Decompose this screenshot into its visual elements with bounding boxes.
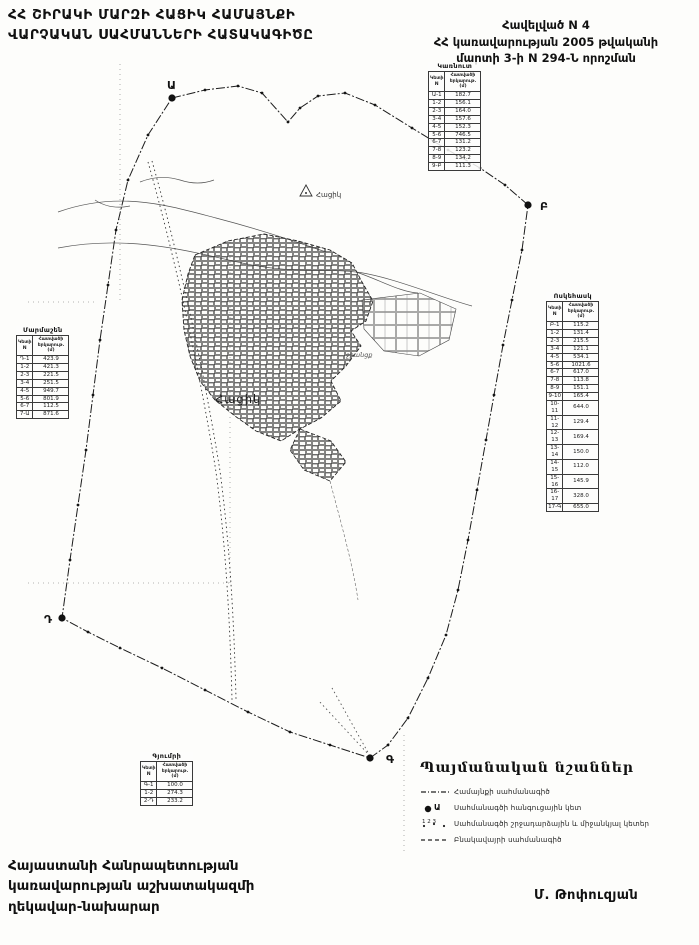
grid-lines <box>28 64 404 855</box>
table-cell: 644.0 <box>563 400 599 415</box>
table-cell: 534.1 <box>563 353 599 361</box>
table-cell: 2-3 <box>429 107 445 115</box>
table-row: 11-12129.4 <box>547 415 599 430</box>
table-cell: 421.3 <box>33 364 69 372</box>
legend-label: Բնակավայրի սահմանագիծ <box>454 836 562 844</box>
table-cell: 134.2 <box>445 155 481 163</box>
legend: Պայմանական նշաններ Համայնքի սահմանագիծ Ա… <box>420 760 688 848</box>
table-cell: 150.0 <box>563 445 599 460</box>
svg-text:Ա: Ա <box>434 803 441 812</box>
table-cell: 157.6 <box>445 115 481 123</box>
table-cell: Բ-1 <box>547 322 563 330</box>
table-cell: 801.9 <box>33 395 69 403</box>
boundary-table-south: Գյումրի Կետի N Հատվածի երկարութ. (մ) Գ-1… <box>140 752 193 806</box>
table-cell: 13-14 <box>547 445 563 460</box>
table-row: 3-4251.5 <box>17 379 69 387</box>
table-row: 14-15112.0 <box>547 459 599 474</box>
table-row: 5-61021.6 <box>547 361 599 369</box>
table-cell: 8-9 <box>547 385 563 393</box>
boundary-table-north: Կառնուտ Կետի N Հատվածի երկարութ. (մ) Ա-1… <box>428 62 481 171</box>
table-cell: 3-4 <box>17 379 33 387</box>
table-cell: 123.2 <box>445 147 481 155</box>
table-row: 4-5949.7 <box>17 387 69 395</box>
legend-label: Համայնքի սահմանագիծ <box>454 788 550 796</box>
table-row: 12-13169.4 <box>547 430 599 445</box>
table-row: Գ-1100.0 <box>141 782 193 790</box>
table-cell: 156.1 <box>445 100 481 108</box>
table-row: Դ-1423.9 <box>17 356 69 364</box>
parcel-area <box>362 293 456 356</box>
table-cell: 5-6 <box>429 131 445 139</box>
table-row: 4-5534.1 <box>547 353 599 361</box>
neighbor-name-south: Գյումրի <box>140 752 193 760</box>
table-cell: 617.0 <box>563 369 599 377</box>
table-row: 1-2274.3 <box>141 790 193 798</box>
table-cell: 111.3 <box>445 163 481 171</box>
table-cell: 112.5 <box>33 403 69 411</box>
settlement-tail <box>290 429 346 481</box>
table-row: 1-2156.1 <box>429 100 481 108</box>
neighbor-name-north: Կառնուտ <box>428 62 481 70</box>
table-cell: 423.9 <box>33 356 69 364</box>
table-cell: 121.1 <box>563 345 599 353</box>
scanned-map-sheet: Ա Բ Գ Դ Հացիկ Հացիկ ջրանցք ՀՀ ՇԻՐԱԿԻ ՄԱՐ… <box>0 0 699 945</box>
table-cell: 5-6 <box>547 361 563 369</box>
table-cell: 9-10 <box>547 393 563 401</box>
node-label-a: Ա <box>167 79 176 92</box>
table-cell: 151.1 <box>563 385 599 393</box>
geo-point-label: Հացիկ <box>316 191 341 199</box>
node-label-b: Բ <box>540 200 548 213</box>
table-cell: 15-16 <box>547 474 563 489</box>
svg-text:1 2 3: 1 2 3 <box>422 819 436 825</box>
table-row: 16-17328.0 <box>547 489 599 504</box>
col-point: Կետի N <box>547 302 563 322</box>
table-row: 2-3164.0 <box>429 107 481 115</box>
table-row: 3-4121.1 <box>547 345 599 353</box>
table-cell: 100.0 <box>157 782 193 790</box>
table-cell: 11-12 <box>547 415 563 430</box>
table-cell: Դ-1 <box>17 356 33 364</box>
table-cell: 6-7 <box>17 403 33 411</box>
boundary-table-west: Մարմաշեն Կետի N Հատվածի երկարութ. (մ) Դ-… <box>16 326 69 419</box>
table-cell: 6-7 <box>547 369 563 377</box>
table-row: 3-4157.6 <box>429 115 481 123</box>
neighbor-name-east: Ոսկեհասկ <box>546 292 599 300</box>
col-length: Հատվածի երկարութ. (մ) <box>445 72 481 92</box>
table-cell: 3-4 <box>429 115 445 123</box>
table-cell: 746.5 <box>445 131 481 139</box>
table-row: Բ-1115.2 <box>547 322 599 330</box>
table-cell: 1-2 <box>17 364 33 372</box>
neighbor-name-west: Մարմաշեն <box>16 326 69 334</box>
turning-points-icon: 1 2 3 <box>420 818 454 830</box>
table-cell: 215.5 <box>563 337 599 345</box>
table-cell: 14-15 <box>547 459 563 474</box>
table-cell: 131.4 <box>563 330 599 338</box>
table-cell: 655.0 <box>563 504 599 512</box>
table-cell: 112.0 <box>563 459 599 474</box>
table-cell: 871.6 <box>33 411 69 419</box>
table-cell: 949.7 <box>33 387 69 395</box>
table-cell: 1-2 <box>141 790 157 798</box>
table-cell: 152.3 <box>445 123 481 131</box>
legend-item-community-boundary: Համայնքի սահմանագիծ <box>420 784 688 800</box>
legend-label: Սահմանագծի շրջադարձային և միջանկյալ կետե… <box>454 820 649 828</box>
table-cell: 131.2 <box>445 139 481 147</box>
col-length: Հատվածի երկարութ. (մ) <box>157 762 193 782</box>
table-cell: 182.7 <box>445 92 481 100</box>
table-row: 4-5152.3 <box>429 123 481 131</box>
table-row: 1-2421.3 <box>17 364 69 372</box>
table-row: 5-6746.5 <box>429 131 481 139</box>
col-point: Կետի N <box>141 762 157 782</box>
table-cell: 165.4 <box>563 393 599 401</box>
table-row: 6-7112.5 <box>17 403 69 411</box>
triangulation-point: Հացիկ <box>300 185 341 199</box>
table-cell: 1-2 <box>429 100 445 108</box>
table-cell: 113.8 <box>563 377 599 385</box>
table-cell: 274.3 <box>157 790 193 798</box>
table-cell: 10-11 <box>547 400 563 415</box>
legend-item-nodal-point: Ա Սահմանագծի հանգուցային կետ <box>420 800 688 816</box>
table-row: 7-8113.8 <box>547 377 599 385</box>
table-cell: 129.4 <box>563 415 599 430</box>
table-cell: 7-8 <box>547 377 563 385</box>
table-row: 7-Ա871.6 <box>17 411 69 419</box>
table-cell: 115.2 <box>563 322 599 330</box>
table-cell: 4-5 <box>17 387 33 395</box>
table-row: 9-Բ111.3 <box>429 163 481 171</box>
table-row: 2-3215.5 <box>547 337 599 345</box>
table-cell: 2-3 <box>547 337 563 345</box>
settlement-area <box>182 234 373 441</box>
table-cell: 3-4 <box>547 345 563 353</box>
legend-label: Սահմանագծի հանգուցային կետ <box>454 804 581 812</box>
table-row: 6-7131.2 <box>429 139 481 147</box>
legend-item-turning-points: 1 2 3 Սահմանագծի շրջադարձային և միջանկյա… <box>420 816 688 832</box>
table-row: 5-6801.9 <box>17 395 69 403</box>
table-cell: 5-6 <box>17 395 33 403</box>
table-row: 10-11644.0 <box>547 400 599 415</box>
settlement-boundary-line-icon <box>420 835 454 845</box>
table-cell: 164.0 <box>445 107 481 115</box>
table-row: 1-2131.4 <box>547 330 599 338</box>
table-cell: 7-8 <box>429 147 445 155</box>
table-row: 6-7617.0 <box>547 369 599 377</box>
table-cell: 8-9 <box>429 155 445 163</box>
table-cell: 4-5 <box>429 123 445 131</box>
table-cell: Ա-1 <box>429 92 445 100</box>
table-cell: 328.0 <box>563 489 599 504</box>
boundary-table-east: Ոսկեհասկ Կետի N Հատվածի երկարութ. (մ) Բ-… <box>546 292 599 512</box>
table-row: Ա-1182.7 <box>429 92 481 100</box>
table-cell: 9-Բ <box>429 163 445 171</box>
community-boundary-line-icon <box>420 787 454 797</box>
col-length: Հատվածի երկարութ. (մ) <box>33 336 69 356</box>
legend-item-settlement-boundary: Բնակավայրի սահմանագիծ <box>420 832 688 848</box>
nodal-point-icon: Ա <box>420 802 454 814</box>
table-row: 17-Գ655.0 <box>547 504 599 512</box>
table-cell: 2-Դ <box>141 797 157 805</box>
table-row: 13-14150.0 <box>547 445 599 460</box>
legend-title: Պայմանական նշաններ <box>420 760 688 776</box>
col-point: Կետի N <box>429 72 445 92</box>
table-cell: 16-17 <box>547 489 563 504</box>
table-cell: 6-7 <box>429 139 445 147</box>
table-cell: 233.2 <box>157 797 193 805</box>
col-length: Հատվածի երկարութ. (մ) <box>563 302 599 322</box>
table-cell: 4-5 <box>547 353 563 361</box>
table-row: 9-10165.4 <box>547 393 599 401</box>
table-row: 2-3221.5 <box>17 371 69 379</box>
table-cell: 17-Գ <box>547 504 563 512</box>
table-row: 8-9151.1 <box>547 385 599 393</box>
settlement-label: Հացիկ <box>215 392 261 406</box>
table-cell: 1-2 <box>547 330 563 338</box>
table-row: 7-8123.2 <box>429 147 481 155</box>
table-cell: 2-3 <box>17 371 33 379</box>
table-row: 15-16145.9 <box>547 474 599 489</box>
table-cell: 7-Ա <box>17 411 33 419</box>
table-cell: 1021.6 <box>563 361 599 369</box>
table-cell: 221.5 <box>33 371 69 379</box>
table-cell: 145.9 <box>563 474 599 489</box>
table-cell: 12-13 <box>547 430 563 445</box>
table-row: 8-9134.2 <box>429 155 481 163</box>
canal-label: ջրանցք <box>345 351 372 359</box>
table-cell: 169.4 <box>563 430 599 445</box>
table-cell: Գ-1 <box>141 782 157 790</box>
node-label-g: Գ <box>386 753 395 766</box>
table-cell: 251.5 <box>33 379 69 387</box>
node-label-d: Դ <box>44 613 53 626</box>
table-row: 2-Դ233.2 <box>141 797 193 805</box>
col-point: Կետի N <box>17 336 33 356</box>
